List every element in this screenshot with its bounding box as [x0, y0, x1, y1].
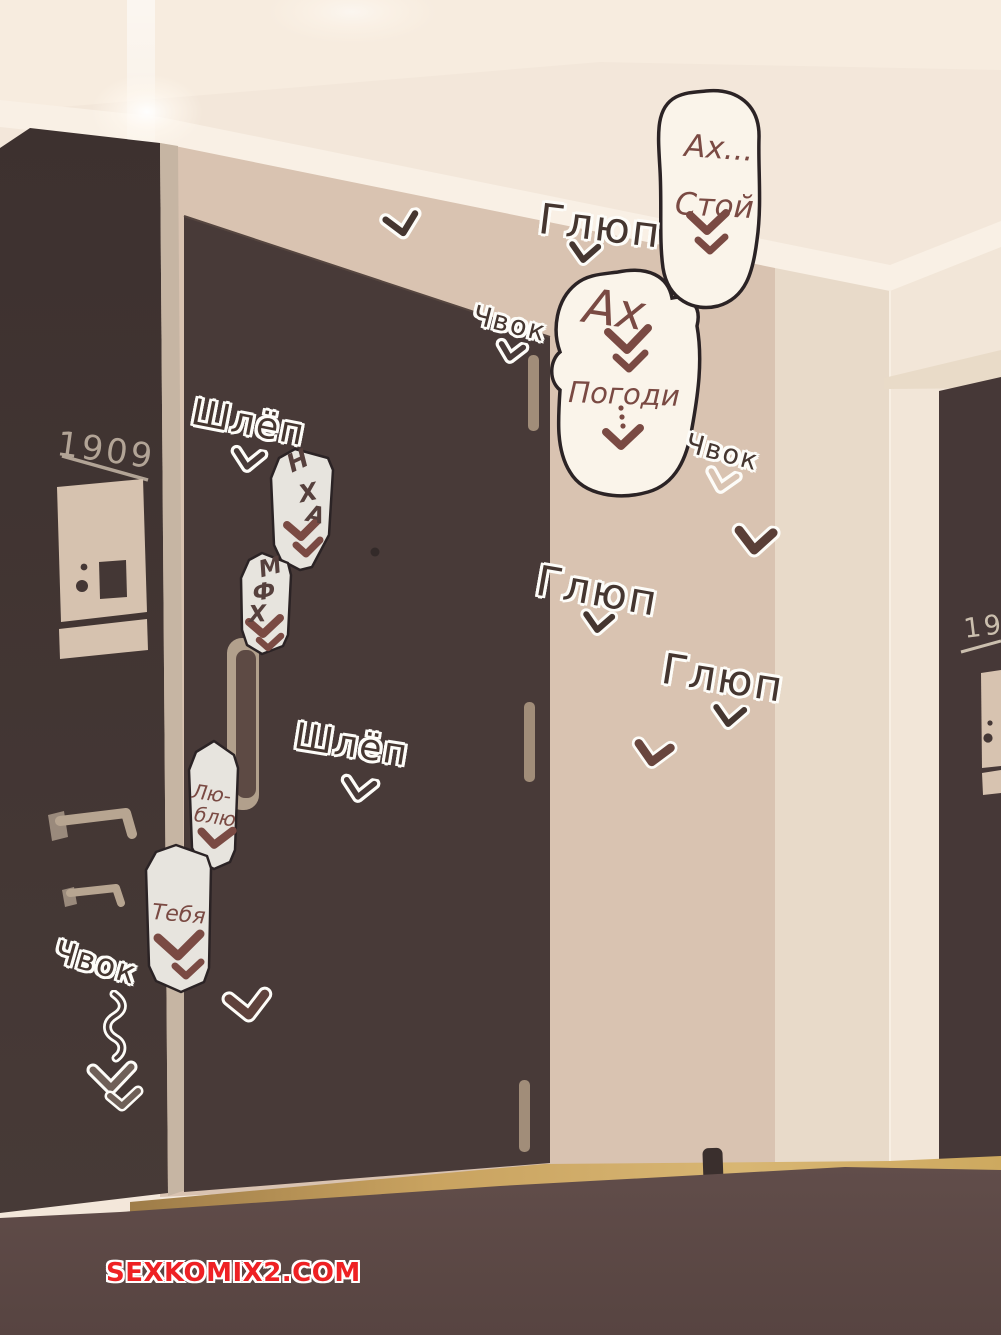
chevron-down-icon: [220, 985, 276, 1028]
chevron-down-icon: [563, 237, 605, 270]
bubble-line: Тебя: [151, 900, 207, 930]
bubble-line: Ах...: [683, 128, 754, 169]
chevron-down-icon: [707, 700, 751, 734]
intercom-speaker: [99, 560, 127, 599]
door-hinge: [519, 1080, 530, 1152]
doorbell-dot-icon: [987, 720, 992, 725]
watermark: SEXKOMIX2.COM: [106, 1258, 361, 1288]
speech-bubble-tebya: Тебя: [140, 840, 218, 998]
bubble-line: Стой: [674, 186, 755, 226]
door-hinge: [528, 355, 539, 431]
bubble-letter: Х: [248, 601, 267, 628]
right-doorbell-panel: [981, 670, 1001, 768]
chevron-down-icon: [728, 521, 781, 562]
bubble-line: Ах: [580, 278, 648, 342]
right-door-plate: [982, 770, 1001, 795]
peephole-icon: [371, 548, 380, 557]
speech-bubble-mfh: М Ф Х: [235, 548, 297, 660]
right-door-number: 19: [962, 609, 1001, 645]
hallway-background: [0, 0, 1001, 1335]
comic-page: Ах Погоди Ах... Стой Н Х А: [0, 0, 1001, 1335]
squiggle-arrow-icon: [84, 990, 148, 1122]
intercom-panel: [57, 479, 148, 659]
door-hinge: [524, 702, 535, 782]
bubble-line: Погоди: [568, 375, 681, 413]
chevron-down-icon: [577, 607, 619, 640]
peephole-dot-icon: [983, 733, 992, 742]
beige-wall-light: [775, 268, 890, 1167]
speech-bubble-ah-stoy: Ах... Стой: [650, 85, 770, 315]
